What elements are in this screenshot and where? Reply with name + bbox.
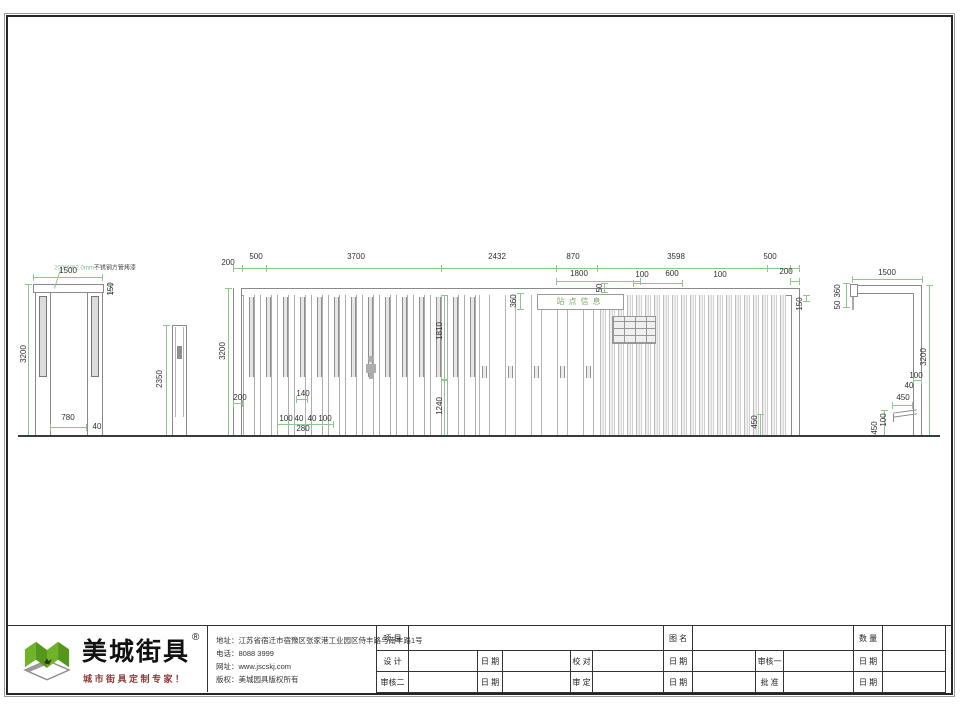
dim-main-200: 200 [221,259,234,267]
company-copyright: 版权：美城园具版权所有 [216,674,299,686]
ground-line [18,435,940,437]
table-label-approve: 审 定 [571,672,593,693]
dim-right-450a: 450 [896,394,909,402]
dim-main-100c: 100 [279,415,292,423]
table-label-design: 设 计 [377,651,409,672]
drawing-sheet: 美城街具 R 城市街具定制专家！ 200*60*2.0mm不锈钢方管烤漆 150… [0,0,960,704]
dim-left-1500: 1500 [59,267,77,275]
dim-line-main-140 [296,399,308,400]
right-beam [852,285,922,294]
dim-line-post-2350 [166,325,167,436]
table-label-date: 日 期 [478,651,503,672]
dim-right-50: 50 [834,301,842,310]
dim-main-1800: 1800 [570,270,588,278]
dim-main-140: 140 [296,390,309,398]
dim-right-40: 40 [905,382,914,390]
dim-line-main-1240 [444,380,445,436]
dim-tick [767,265,768,272]
company-website: 网址：www.jscskj.com [216,661,291,673]
main-post-right [791,295,800,436]
table-cell-project-value [409,626,664,651]
dim-main-3598: 3598 [667,253,685,261]
left-elevation-beam [33,284,104,293]
table-cell-drawing-name-value [693,626,854,651]
dim-tick [597,265,598,272]
table-cell-review1-value [784,651,854,672]
company-registered-icon: ® [192,632,199,643]
dim-main-360: 360 [510,294,518,307]
dim-line-right-450 [892,405,913,406]
dim-right-100b: 100 [880,413,888,426]
dim-line-main-200s [233,403,243,404]
left-elevation-slot-left [39,296,47,377]
table-label-ratify: 批 准 [756,672,784,693]
dim-line-main-1810 [444,295,445,380]
left-elevation-slot-right [91,296,99,377]
dim-main-280: 280 [296,425,309,433]
dim-main-150: 150 [796,297,804,310]
table-cell-design-value [409,651,478,672]
dim-tick [556,265,557,272]
dim-post-2350: 2350 [156,370,164,388]
dim-line-right-3200 [929,285,930,436]
table-cell-approve-value [593,672,664,693]
dim-line-right-100 [913,380,922,381]
mid-post-plate [177,346,182,359]
table-label-date: 日 期 [478,672,503,693]
table-label-project: 项 目 [377,626,409,651]
dim-main-450: 450 [751,415,759,428]
dim-main-500r: 500 [763,253,776,261]
right-beam-cap [850,284,858,297]
table-label-quantity: 数 量 [854,626,883,651]
mid-post-inner [175,327,184,417]
dim-main-600: 600 [665,270,678,278]
table-label-date: 日 期 [854,651,883,672]
dim-line-main-450 [760,414,761,436]
titleblock-divider-1 [207,625,208,692]
table-cell-date-value [693,672,756,693]
dim-line-main-sub [633,283,683,284]
dim-main-40b: 40 [308,415,317,423]
dim-right-360: 360 [834,284,842,297]
dim-main-40a: 40 [295,415,304,423]
table-label-drawing-name: 图 名 [664,626,693,651]
dim-line-left-3200 [28,284,29,436]
table-cell-date-value [883,672,946,693]
dim-main-1810: 1810 [436,322,444,340]
table-label-date: 日 期 [664,672,693,693]
dim-right-3200: 3200 [920,348,928,366]
dim-main-100d: 100 [318,415,331,423]
dim-right-450b: 450 [871,421,879,434]
table-label-review2: 审核二 [377,672,409,693]
dim-main-200s: 200 [233,394,246,402]
table-cell-check-value [593,651,664,672]
company-phone: 电话：8088 3999 [216,648,274,660]
company-brand: 美城街具 [82,640,190,665]
dim-line-main-150 [806,295,807,302]
dim-main-1240: 1240 [436,397,444,415]
dim-right-100a: 100 [909,372,922,380]
person-figure-icon [364,355,378,379]
table-cell-date-value [883,651,946,672]
dim-line-main-top [233,268,800,269]
dim-line-right-1500 [852,279,923,280]
dim-line-left-1500 [33,277,103,278]
dim-main-100b: 100 [713,271,726,279]
dim-main-200r: 200 [779,268,792,276]
dim-main-870: 870 [566,253,579,261]
table-label-date: 日 期 [854,672,883,693]
dim-main-2432: 2432 [488,253,506,261]
main-slot-caps-section-b [482,366,600,378]
company-logo-icon [18,630,76,688]
dim-tick [242,265,243,272]
dim-main-50: 50 [596,284,604,293]
table-label-date: 日 期 [664,651,693,672]
dim-line-main-200r [790,281,800,282]
dim-main-100a: 100 [635,271,648,279]
table-cell-ratify-value [784,672,854,693]
dim-line-main-50 [604,283,605,293]
table-label-check: 校 对 [571,651,593,672]
dim-left-780: 780 [61,414,74,422]
right-hanger [852,297,854,310]
table-cell-review2-value [409,672,478,693]
dim-tick [266,265,267,272]
dim-right-1500: 1500 [878,269,896,277]
dim-line-main-360 [520,293,521,310]
table-cell-date-value [503,651,571,672]
dim-tick [441,265,442,272]
dim-line-main-1800 [556,281,641,282]
table-cell-quantity-value [883,626,946,651]
dim-main-3700: 3700 [347,253,365,261]
dim-left-3200: 3200 [20,345,28,363]
dim-line-main-3200 [228,288,229,436]
table-label-review1: 审核一 [756,651,784,672]
dim-left-150: 150 [107,282,115,295]
table-cell-date-value [693,651,756,672]
dim-line-left-780 [50,427,87,428]
dim-left-40: 40 [93,423,102,431]
main-post-left [233,288,242,436]
right-seat-support [893,414,894,422]
titleblock-table: 项 目 图 名 数 量 设 计 日 期 校 对 日 期 审核一 日 期 审核二 … [376,625,946,693]
company-slogan: 城市街具定制专家！ [83,672,187,685]
dim-line-right-360-50 [846,283,847,308]
main-sign-panel: 站点信息 [537,294,624,310]
main-bench-grid [612,316,656,344]
table-cell-date-value [503,672,571,693]
dim-main-500: 500 [249,253,262,261]
dim-main-3200: 3200 [219,342,227,360]
left-note-material: 不锈钢方管烤漆 [94,266,136,272]
